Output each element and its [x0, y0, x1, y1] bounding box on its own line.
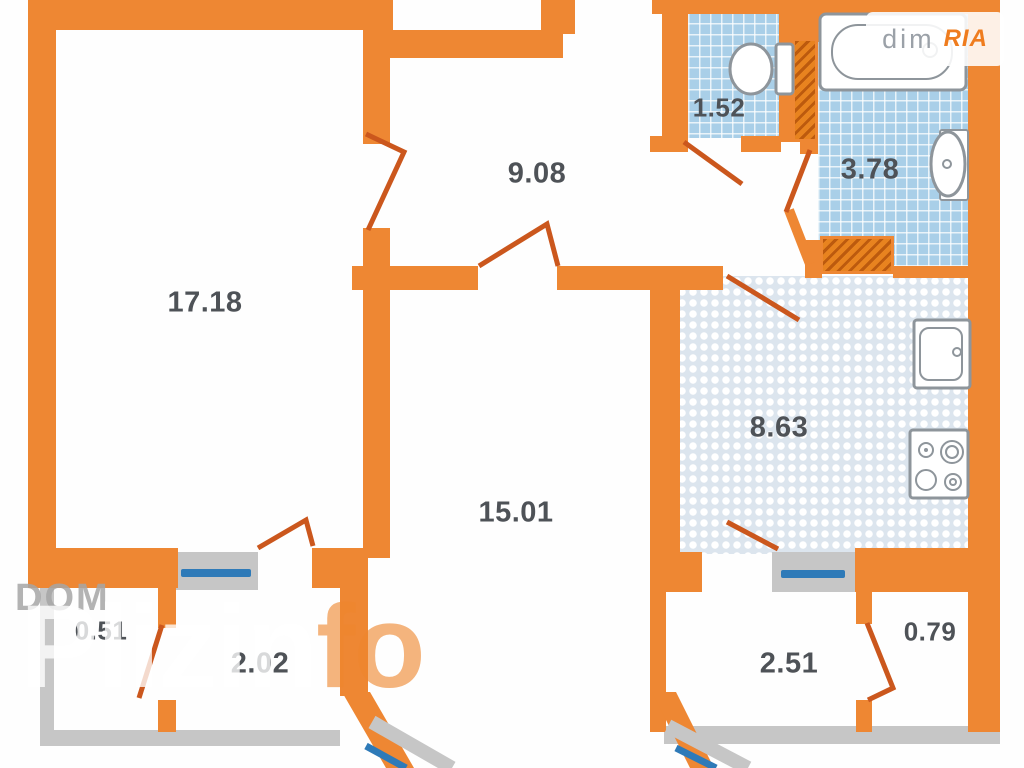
balcony-right-door — [867, 623, 893, 700]
living-room-door — [366, 134, 404, 230]
floor-plan: 17.18 9.08 1.52 3.78 8.63 15.01 0.51 2.0… — [0, 0, 1024, 768]
room-label-balcony-right: 0.79 — [904, 617, 957, 648]
watermark-in: in — [215, 581, 316, 713]
room-label-wc: 1.52 — [693, 93, 746, 124]
dim-logo-text: dim — [882, 24, 935, 55]
watermark-pliz: Pliz — [20, 581, 215, 713]
stove-icon — [910, 430, 968, 498]
kitchen-sink-icon — [914, 320, 970, 388]
room-label-hallway: 9.08 — [508, 158, 566, 191]
room-label-kitchen: 8.63 — [750, 412, 808, 445]
dim-ria-logo: dim RIA — [866, 12, 1004, 66]
bathroom-door — [786, 150, 810, 212]
toilet-icon — [730, 44, 793, 94]
kitchen-door — [727, 276, 799, 320]
ria-logo-icon: RIA — [944, 25, 988, 53]
room-label-bedroom: 15.01 — [478, 497, 553, 530]
wc-door — [684, 142, 742, 184]
watermark-pliz-info: Plizinfo — [20, 586, 424, 710]
kitchen-loggia-door — [727, 522, 778, 549]
watermark-fo: fo — [316, 581, 423, 713]
washbasin-icon — [931, 130, 968, 200]
room-label-bathroom: 3.78 — [841, 154, 899, 187]
bathroom-entry-diagonal-wall — [789, 210, 810, 264]
room-label-loggia-right: 2.51 — [760, 648, 818, 681]
bedroom-door — [479, 224, 558, 266]
living-loggia-door — [258, 520, 313, 548]
room-label-living: 17.18 — [167, 287, 242, 320]
